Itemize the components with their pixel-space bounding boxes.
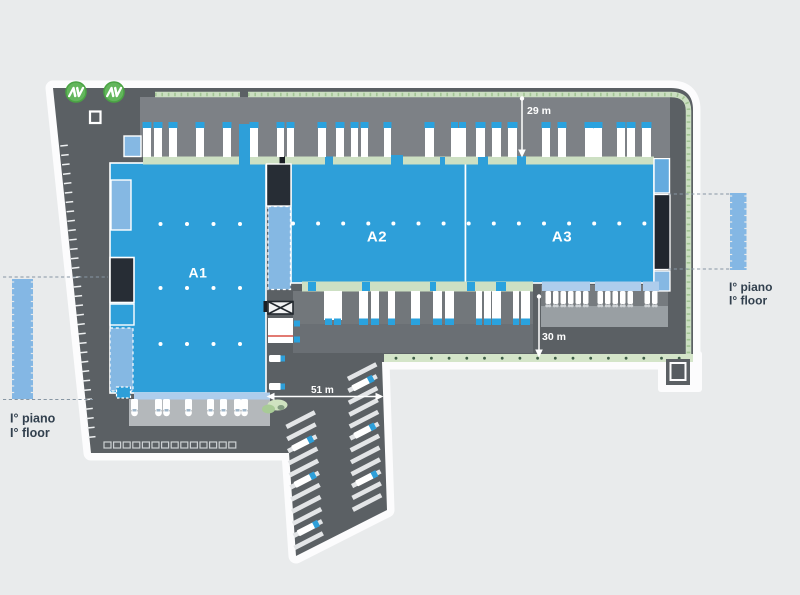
svg-text:I° piano: I° piano (10, 412, 56, 426)
svg-text:29 m: 29 m (527, 105, 551, 117)
svg-text:I° floor: I° floor (729, 294, 767, 308)
svg-text:A1: A1 (189, 265, 208, 281)
svg-text:A3: A3 (552, 229, 572, 246)
svg-text:I° floor: I° floor (10, 426, 50, 440)
svg-text:I° piano: I° piano (729, 280, 772, 294)
svg-text:51 m: 51 m (311, 385, 334, 396)
svg-text:A2: A2 (367, 229, 387, 246)
svg-text:30 m: 30 m (542, 331, 566, 343)
